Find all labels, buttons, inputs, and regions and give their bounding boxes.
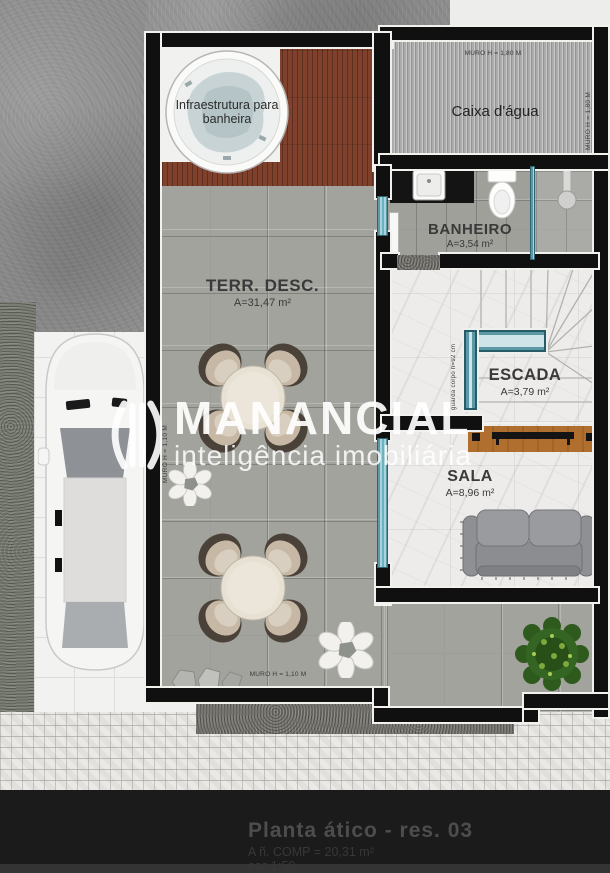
wall-bath-stairs-right xyxy=(440,254,598,268)
wall-bath-stairs-left xyxy=(382,254,398,268)
wall-note-right: MURO H = 1,80 M xyxy=(585,55,592,150)
plan-title: Planta ático - res. 03 xyxy=(248,819,473,843)
deck-note-text: Infraestrutura para banheira xyxy=(168,98,286,126)
grass-strip xyxy=(0,302,36,718)
wall-deck-tank-divider xyxy=(374,33,390,170)
wall-left xyxy=(146,33,160,695)
dining-set-lower xyxy=(198,533,308,643)
wall-bottom-c xyxy=(524,694,608,708)
wall-bottom-a xyxy=(146,688,386,702)
bathroom-name: BANHEIRO xyxy=(395,221,545,238)
wall-top-right xyxy=(380,27,608,40)
terrace-name: TERR. DESC. xyxy=(170,276,355,296)
potted-plant xyxy=(514,616,590,692)
wall-note-bottom: MURO H = 1,10 M xyxy=(218,671,338,678)
top-right-margin xyxy=(450,0,610,30)
wall-living-terrace xyxy=(376,588,598,602)
wall-tank-bottom xyxy=(380,155,608,169)
sofa xyxy=(460,506,598,580)
glass-door-bathroom xyxy=(377,196,388,236)
shower-head xyxy=(552,168,582,212)
wall-note-top: MURO H = 1,80 M xyxy=(438,50,548,57)
title-block: Planta ático - res. 03 A ñ. COMP = 20,31… xyxy=(248,819,473,873)
watermark-brand: MANANCIAL xyxy=(174,398,472,439)
toilet xyxy=(486,169,518,221)
watermark-text: MANANCIAL inteligência imobiliária xyxy=(174,398,472,471)
wall-terrace-interior-a xyxy=(376,166,390,198)
label-bathroom: BANHEIRO A=3,54 m² xyxy=(395,221,545,250)
watermark-tagline: inteligência imobiliária xyxy=(174,440,472,472)
concrete-ground-left xyxy=(0,0,148,336)
stone-flower-large xyxy=(318,622,374,678)
car xyxy=(38,330,152,674)
label-stairs: ESCADA A=3,79 m² xyxy=(450,366,600,398)
label-terrace: TERR. DESC. A=31,47 m² xyxy=(170,276,355,309)
bathroom-area: A=3,54 m² xyxy=(395,239,545,250)
stairs-name: ESCADA xyxy=(450,366,600,385)
water-tank-name: Caixa d'água xyxy=(405,103,585,120)
terrace-area: A=31,47 m² xyxy=(170,297,355,309)
manancial-logo-icon xyxy=(106,388,162,482)
deck-note: Infraestrutura para banheira xyxy=(168,98,286,126)
watermark: MANANCIAL inteligência imobiliária xyxy=(106,388,472,482)
wall-top-left xyxy=(146,33,392,47)
wall-bottom-b xyxy=(374,708,534,722)
tv-rack xyxy=(468,426,598,452)
floor-plan-canvas: Planta ático - res. 03 A ñ. COMP = 20,31… xyxy=(0,0,610,873)
doorway-mat xyxy=(397,255,440,270)
stairs-area: A=3,79 m² xyxy=(450,386,600,398)
plan-scale-line: esc 1:50 xyxy=(248,859,473,873)
label-water-tank: Caixa d'água xyxy=(405,103,585,120)
sink xyxy=(412,169,446,201)
living-area: A=8,96 m² xyxy=(405,487,535,499)
plan-area-line: A ñ. COMP = 20,31 m² xyxy=(248,845,473,859)
